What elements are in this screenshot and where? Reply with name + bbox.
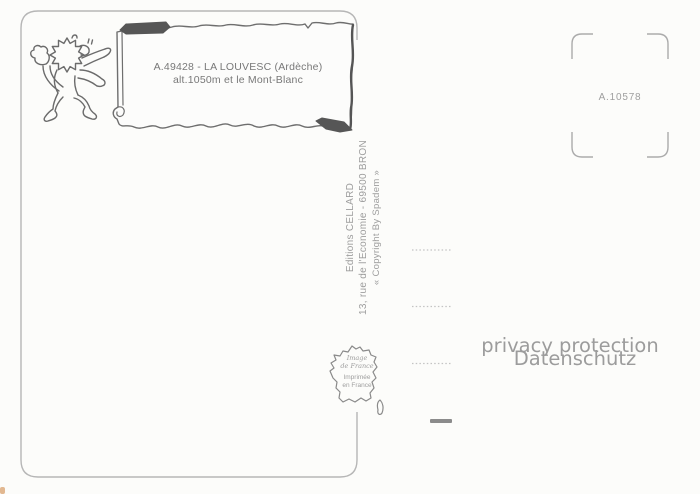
publisher-copyright: « Copyright By Spadem » [370,120,383,335]
redaction-dash [430,419,452,423]
publisher-address: 13, rue de l'Economie - 69500 BRON [357,120,370,335]
scan-smudge-artifact [0,487,5,494]
print-mark-line-4: en France [331,382,383,390]
caption-line-2: alt.1050m et le Mont-Blanc [128,74,348,87]
publisher-imprint: Editions CELLARD 13, rue de l'Economie -… [344,120,383,335]
postcard-caption: A.49428 - LA LOUVESC (Ardèche) alt.1050m… [128,61,348,87]
print-mark-line-3: Imprimée [331,374,383,382]
publisher-name: Editions CELLARD [344,120,357,335]
caption-line-1: A.49428 - LA LOUVESC (Ardèche) [128,61,348,74]
postcard-back: A.49428 - LA LOUVESC (Ardèche) alt.1050m… [0,0,700,494]
stamp-reference-number: A.10578 [572,92,668,103]
print-mark-text: Image de France Imprimée en France [331,354,383,390]
address-dotted-lines [412,250,451,364]
corsica-outline [377,400,383,414]
privacy-watermark-line-2: Datenschutz [465,350,685,367]
heraldic-lion-icon [31,35,111,121]
print-mark-line-1: Image [331,354,383,362]
print-mark-line-2: de France [331,362,383,370]
